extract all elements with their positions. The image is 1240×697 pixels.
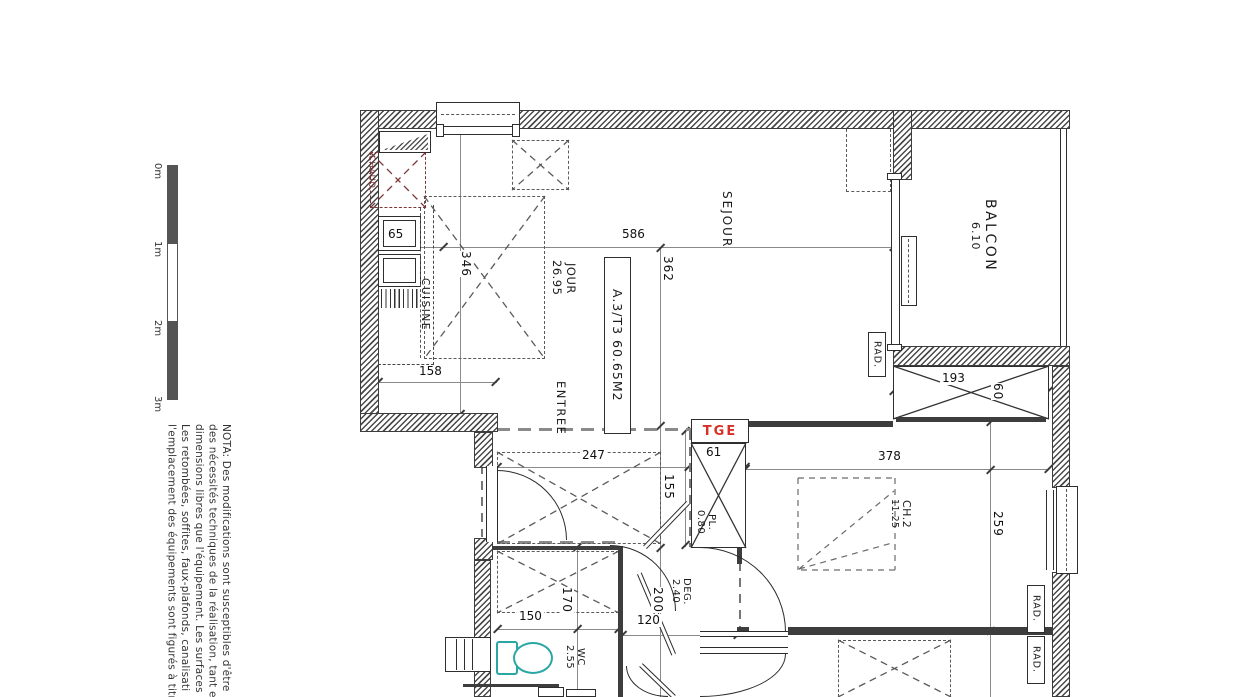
wall-ch2-bottom — [788, 627, 1053, 635]
window-ch2-glazing — [1046, 490, 1054, 570]
room-label-sejour: SEJOUR — [720, 191, 734, 248]
toilet-bowl — [513, 642, 553, 674]
room-area: 2.55 — [564, 634, 575, 680]
boiler-x — [370, 152, 426, 208]
dim-586: 586 — [620, 228, 647, 241]
wall-kitchen-bottom — [360, 413, 498, 432]
dim-378: 378 — [876, 450, 903, 463]
room-label-wc: WC 2.55 — [564, 634, 586, 680]
nota-line: des nécessités techniques de la réalisat… — [205, 424, 219, 697]
ch1-door-arc — [700, 654, 786, 697]
window-strip-x — [893, 366, 1049, 419]
dim-346: 346 — [459, 251, 473, 277]
wall-balcony-bottom — [893, 346, 1070, 366]
radiator-label: RAD. — [1031, 646, 1042, 673]
dim-61: 61 — [704, 446, 723, 459]
room-name: PL. — [706, 496, 717, 548]
room-label-balcon: BALCON 6.10 — [969, 180, 998, 292]
room-area: 6.10 — [969, 180, 982, 292]
soffit-x-kitchen — [424, 196, 545, 359]
window-wc-bar — [456, 639, 457, 670]
soffit-x-wc — [497, 551, 619, 613]
room-area: 2.40 — [670, 566, 681, 616]
dim-line — [745, 469, 1048, 470]
radiator-sejour: RAD. — [868, 332, 886, 377]
tge-box: TGE — [691, 419, 749, 443]
apartment-label-box: A.3/T3 60.65M2 — [604, 257, 631, 434]
room-label-cuisine: CUISINE — [419, 278, 431, 331]
apartment-label: A.3/T3 60.65M2 — [610, 289, 625, 402]
window-sejour-balcon-glazing — [891, 178, 900, 346]
window-top-glazing — [443, 126, 513, 135]
scale-bar-segment-2-3m — [167, 322, 178, 400]
wall-entree-left-upper — [474, 432, 493, 468]
fixture-cut — [566, 689, 596, 697]
radiator-ch2-lower: RAD. — [1027, 636, 1045, 684]
radiator-label: RAD. — [1031, 595, 1042, 622]
room-name: CH.2 — [900, 484, 913, 544]
wall-sejour-ch2 — [742, 421, 893, 427]
window-sejour-mullion — [901, 236, 917, 306]
room-label-entree: ENTREE — [554, 381, 568, 435]
room-label-ch2: CH.2 11.25 — [889, 484, 913, 544]
dim-158: 158 — [417, 365, 444, 378]
wc-door-arc — [626, 666, 668, 697]
bed-outline — [797, 477, 896, 571]
dim-247: 247 — [580, 449, 607, 462]
window-ch2-frame — [1056, 486, 1078, 574]
window-top-cap — [436, 124, 444, 137]
room-label-deg: DEG. 2.40 — [670, 566, 692, 616]
soffit-x-ch1 — [838, 640, 951, 697]
nota-line: l'emplacement des équipements sont figur… — [164, 424, 178, 697]
fixture-cut — [538, 687, 564, 697]
dim-155: 155 — [662, 474, 676, 500]
nota-text: NOTA: Des modifications sont susceptible… — [164, 424, 232, 697]
floor-plan-canvas: 0m 1m 2m 3m NOTA: Des modifications sont… — [0, 0, 1240, 697]
nota-line: Les retombées, soffites, faux-plafonds, … — [178, 424, 192, 697]
window-sejour-mullion-dash — [908, 239, 909, 303]
dim-tick — [491, 377, 500, 386]
dim-65: 65 — [386, 228, 405, 241]
wall-wc-left — [474, 560, 491, 697]
window-wc-frame — [445, 637, 491, 672]
wall-right-upper — [1052, 366, 1070, 488]
scale-label-3m: 3m — [152, 396, 163, 412]
room-area: 26.95 — [550, 247, 564, 309]
dim-line — [360, 382, 497, 383]
room-name: WC — [575, 634, 586, 680]
dim-60: 60 — [991, 383, 1005, 400]
wall-entree-wc — [493, 546, 623, 550]
window-top-cap — [512, 124, 520, 137]
radiator-label: RAD. — [872, 341, 883, 368]
wall-sejour-balcon-upper — [893, 110, 912, 180]
window-sejour-cap — [887, 344, 902, 351]
dim-line — [685, 431, 686, 547]
room-area: 11.25 — [889, 484, 900, 544]
room-name: DEG. — [681, 566, 692, 616]
dim-120: 120 — [635, 614, 662, 627]
scale-label-0m: 0m — [152, 163, 163, 179]
scale-label-2m: 2m — [152, 320, 163, 336]
window-ch2-dash — [1066, 489, 1067, 571]
scale-label-1m: 1m — [152, 241, 163, 257]
dim-170: 170 — [560, 587, 574, 613]
window-top-frame — [436, 102, 520, 128]
scale-bar-segment-1-2m — [167, 243, 178, 322]
balcony-edge — [1060, 129, 1067, 346]
wall-right-lower — [1052, 572, 1070, 697]
ch2-door-arc — [700, 547, 786, 632]
nota-line: dimensions libres que l'équipement. Les … — [191, 424, 205, 697]
window-wc-bar — [472, 639, 473, 670]
dim-line — [497, 629, 619, 630]
nota-line: NOTA: Des modifications sont susceptible… — [218, 424, 232, 697]
room-sub-label: JOUR — [564, 247, 578, 309]
radiator-ch2-upper: RAD. — [1027, 585, 1045, 633]
window-wc-bar — [464, 639, 465, 670]
soffit-x-top — [512, 140, 569, 190]
room-name: BALCON — [982, 180, 998, 292]
dim-200: 200 — [651, 587, 665, 613]
room-label-sejour-area: JOUR 26.95 — [550, 247, 578, 309]
tge-label: TGE — [703, 424, 737, 439]
dim-259: 259 — [991, 511, 1005, 537]
room-label-pl: PL. 0.80 — [695, 496, 717, 548]
scale-bar-segment-0-1m — [167, 165, 178, 243]
dim-150: 150 — [517, 610, 544, 623]
window-sejour-cap — [887, 173, 902, 180]
room-area: 0.80 — [695, 496, 706, 548]
window-top-dashed — [441, 114, 515, 115]
dim-362: 362 — [661, 256, 675, 282]
window-strip-sill — [896, 417, 1046, 422]
dim-193: 193 — [940, 372, 967, 385]
boiler-label: CHAUD. — [366, 155, 376, 192]
ch1-door-leaf — [700, 647, 788, 654]
balcony-door-dashed — [846, 124, 891, 192]
